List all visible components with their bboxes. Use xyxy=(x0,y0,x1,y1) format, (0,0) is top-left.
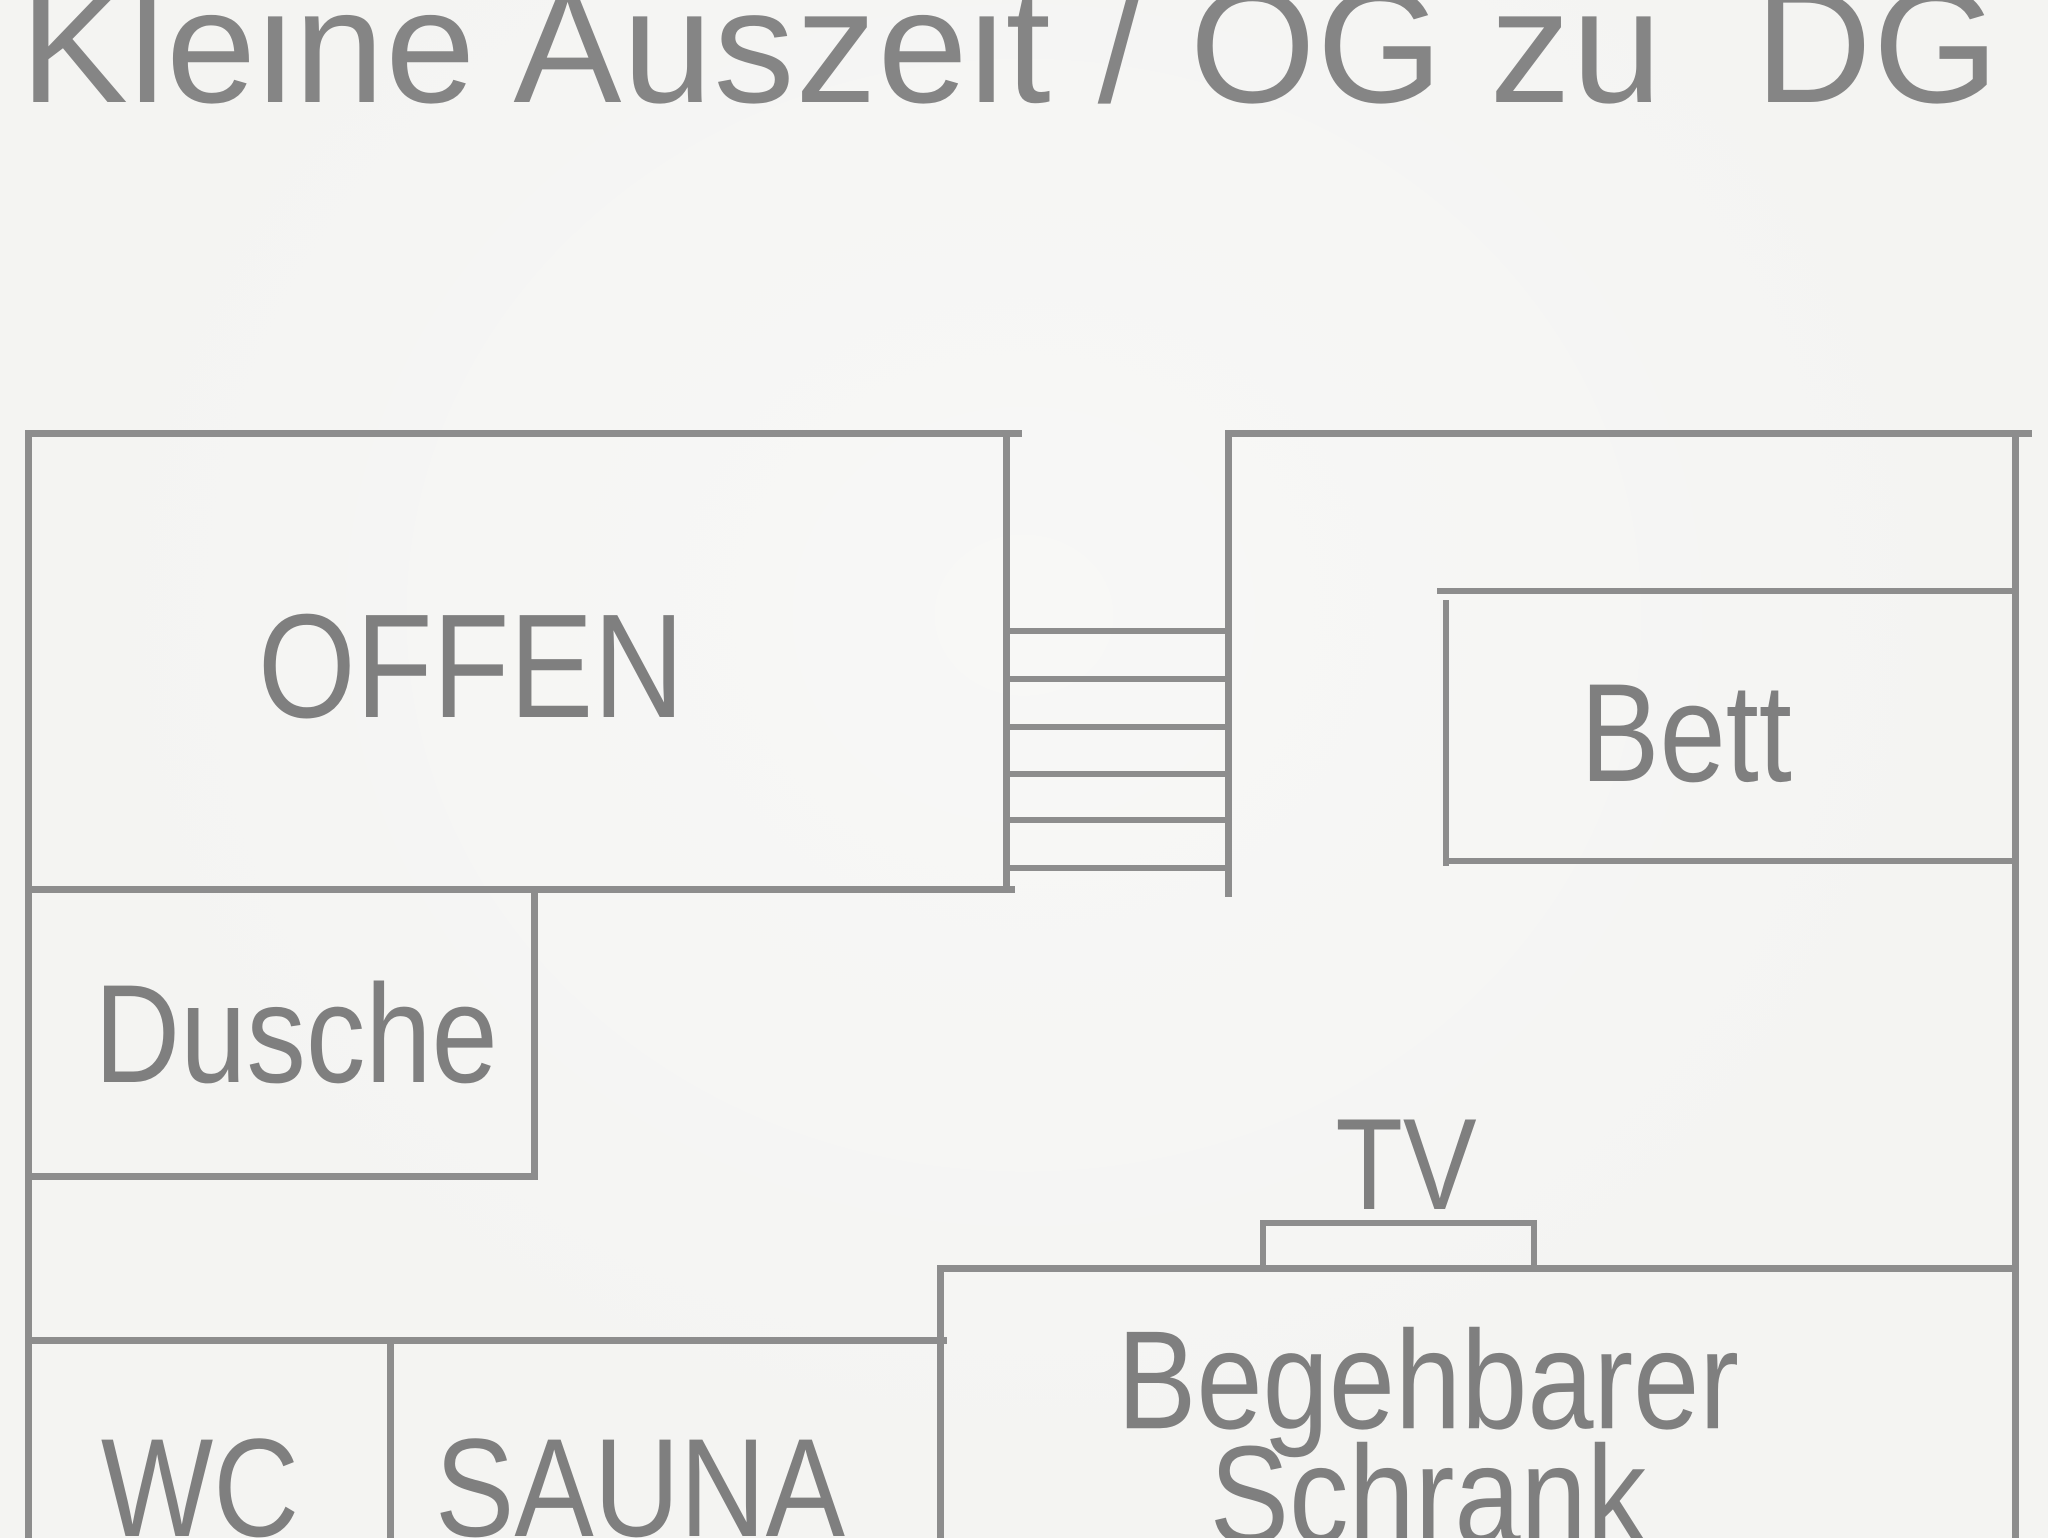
bett-outline-left xyxy=(1443,600,1449,866)
floorplan-title: Kleine Auszeit / OG zu DG xyxy=(20,0,2000,128)
floor-plan: Kleine Auszeit / OG zu DG OFFEN Dusche B… xyxy=(0,0,2048,1538)
stair-step xyxy=(1003,865,1232,871)
stair-step xyxy=(1003,676,1232,682)
bett-outline-top xyxy=(1437,588,2019,594)
room-label-dusche: Dusche xyxy=(94,964,497,1104)
stair-step xyxy=(1003,771,1232,777)
room-label-wc: WC xyxy=(101,1418,299,1538)
wall-schrank-left xyxy=(937,1265,944,1538)
room-label-sauna: SAUNA xyxy=(435,1418,845,1538)
room-label-bett: Bett xyxy=(1580,663,1792,803)
room-label-offen: OFFEN xyxy=(258,593,684,741)
wall-wc-sauna-top xyxy=(25,1337,947,1344)
wall-offen-right xyxy=(1003,430,1010,893)
stair-step xyxy=(1003,817,1232,823)
wall-offen-bottom xyxy=(25,886,1015,893)
wall-offen-top xyxy=(25,430,1022,437)
room-label-tv: TV xyxy=(1335,1099,1476,1229)
wall-outer-left xyxy=(25,430,32,1538)
wall-dusche-right xyxy=(531,886,538,1180)
wall-dusche-bottom xyxy=(25,1173,538,1180)
wall-bedroom-top xyxy=(1225,430,2032,437)
stair-step xyxy=(1003,724,1232,730)
room-label-schrank: Begehbarer Schrank xyxy=(1046,1323,1811,1538)
wall-wc-sauna-divider xyxy=(387,1337,394,1538)
wall-outer-right xyxy=(2012,430,2019,1538)
wall-bedroom-left xyxy=(1225,430,1232,897)
room-label-schrank-line2: Schrank xyxy=(1210,1416,1647,1538)
stair-step xyxy=(1003,628,1232,634)
bett-outline-bottom xyxy=(1443,858,2019,864)
